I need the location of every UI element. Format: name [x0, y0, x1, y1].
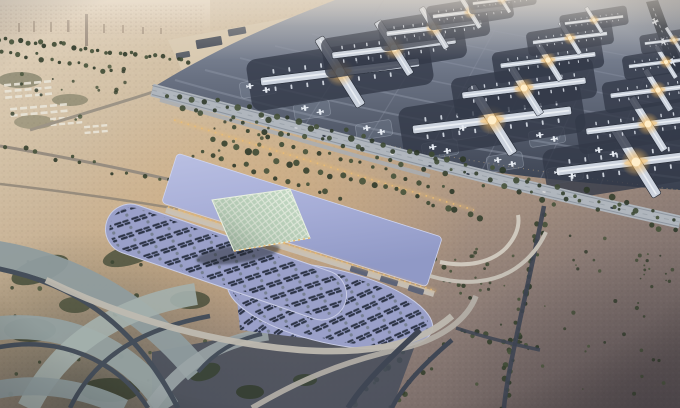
vignette — [0, 0, 680, 408]
airport-rendering — [0, 0, 680, 408]
